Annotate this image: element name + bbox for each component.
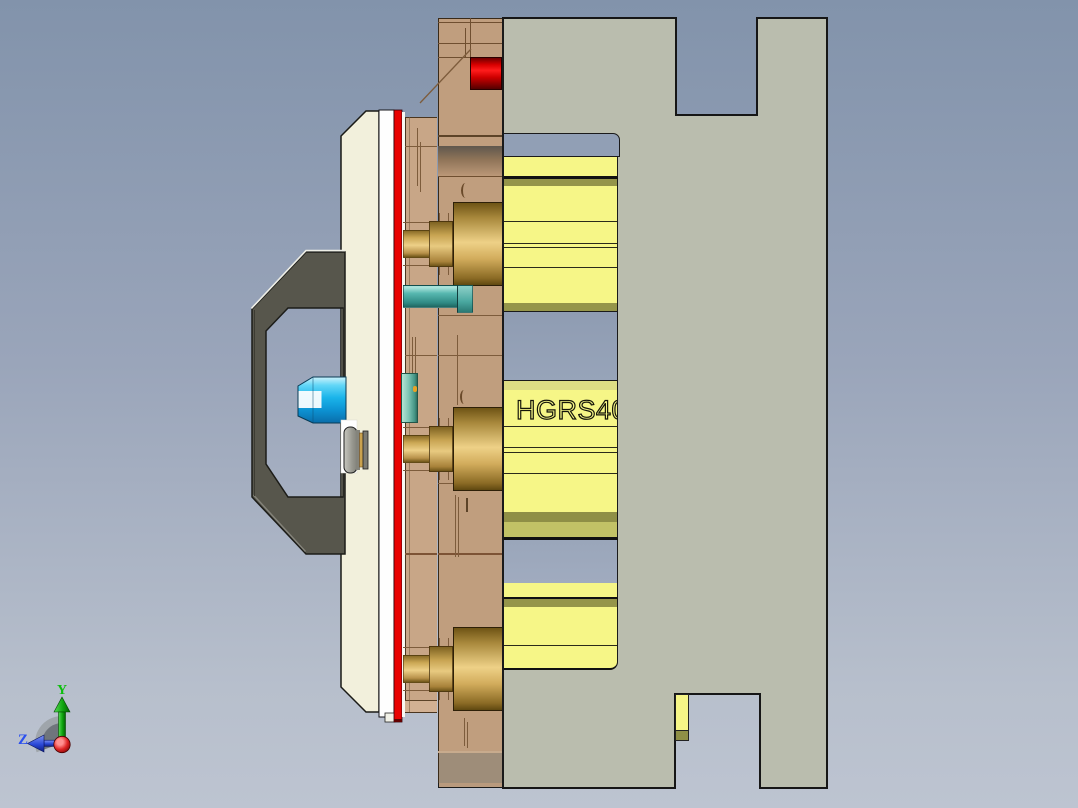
spring-coil[interactable] xyxy=(503,583,618,599)
plate-boundary-line xyxy=(502,18,504,788)
coil-line xyxy=(503,243,617,244)
coil-line xyxy=(503,473,617,474)
spring-coil[interactable] xyxy=(503,186,618,303)
coil-line xyxy=(503,645,617,646)
pocket-gap xyxy=(503,540,618,583)
cad-viewport[interactable]: HGRS40 Y xyxy=(0,0,1078,808)
spring-coil-olive-light xyxy=(503,522,618,540)
spring-coil-olive xyxy=(503,512,618,522)
pocket-gap xyxy=(503,312,618,380)
spring-coil-olive xyxy=(503,303,618,312)
spring-pocket-cap xyxy=(503,133,620,157)
coil-line xyxy=(503,452,617,453)
spring-coil[interactable] xyxy=(503,427,618,512)
coil-line xyxy=(503,267,617,268)
spring-coil-pale xyxy=(503,380,618,390)
y-axis-label: Y xyxy=(57,683,67,698)
notch-spring-strip[interactable] xyxy=(675,694,689,731)
spring-coil[interactable] xyxy=(503,157,618,179)
origin-ball[interactable] xyxy=(54,736,70,752)
y-axis-arrowhead[interactable] xyxy=(54,697,70,712)
coil-line xyxy=(503,221,617,222)
notch-spring-strip-olive xyxy=(675,731,689,741)
rail-label: HGRS40 xyxy=(516,393,618,427)
rail-label-block[interactable]: HGRS40 xyxy=(503,390,618,427)
coil-line xyxy=(503,447,617,448)
spring-coil-olive xyxy=(503,179,618,186)
coil-line xyxy=(503,247,617,248)
spring-coil-olive xyxy=(503,599,618,607)
z-axis-label: Z xyxy=(18,732,28,748)
spring-coil[interactable] xyxy=(503,607,618,670)
orientation-triad[interactable]: Y Z xyxy=(18,678,110,794)
